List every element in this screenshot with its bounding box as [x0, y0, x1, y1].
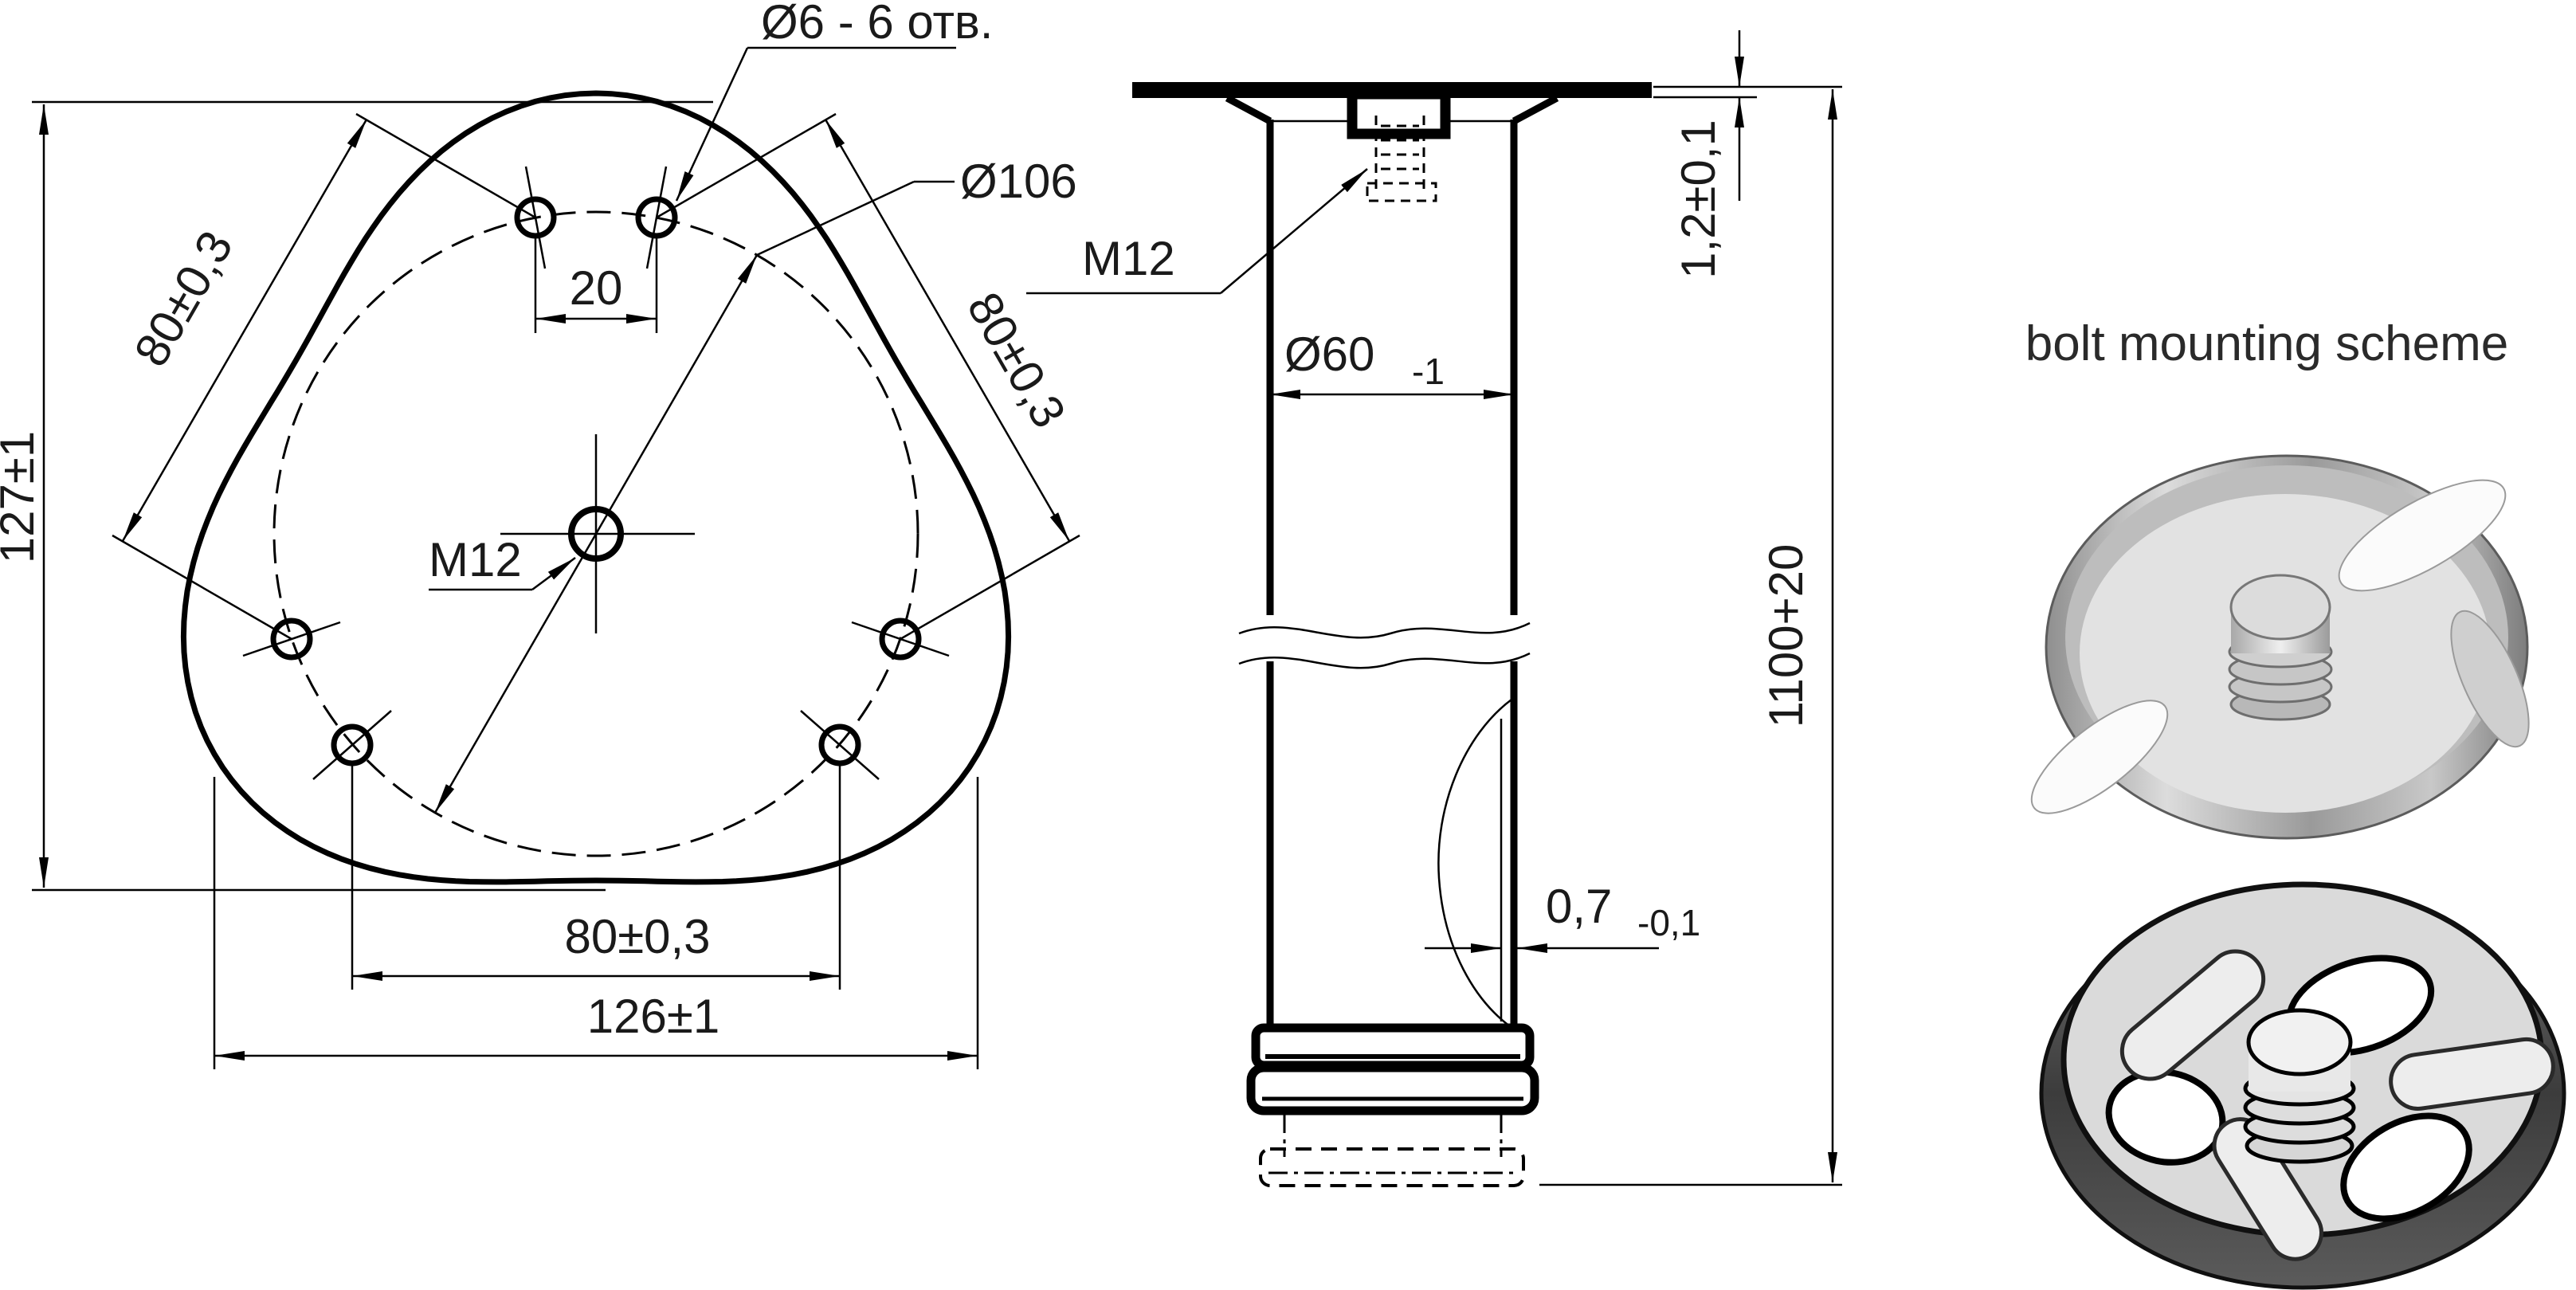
- label-wall-thickness-tol: -0,1: [1637, 902, 1700, 943]
- technical-drawing-canvas: Ø106 Ø6 - 6 отв. M12 20 127±1: [0, 0, 2576, 1290]
- label-tube-diameter: Ø60: [1284, 327, 1374, 381]
- label-leg-length: 1100+20: [1759, 544, 1813, 728]
- label-wall-thickness: 0,7: [1546, 880, 1612, 933]
- drawing-page: Ø106 Ø6 - 6 отв. M12 20 127±1: [0, 0, 2576, 1290]
- cup-center-stud: [2229, 575, 2331, 719]
- label-overall-width: 126±1: [587, 990, 719, 1043]
- disc-center-stud: [2245, 1010, 2354, 1162]
- label-tube-diameter-tol: -1: [1412, 351, 1445, 392]
- label-bolt-circle: Ø106: [960, 155, 1077, 208]
- leg-foot: [1251, 1028, 1535, 1111]
- label-hole-spacing-bottom: 80±0,3: [564, 910, 710, 963]
- label-center-thread: M12: [429, 533, 522, 586]
- iso-view-disc-bottom: [2041, 884, 2564, 1288]
- label-plate-thickness: 1,2±0,1: [1672, 120, 1725, 279]
- label-insert-thread: M12: [1082, 232, 1175, 285]
- label-hole-pair-spacing: 20: [570, 261, 623, 315]
- label-overall-height: 127±1: [0, 431, 44, 563]
- panel-title: bolt mounting scheme: [2025, 316, 2509, 371]
- label-holes-callout: Ø6 - 6 отв.: [761, 0, 993, 49]
